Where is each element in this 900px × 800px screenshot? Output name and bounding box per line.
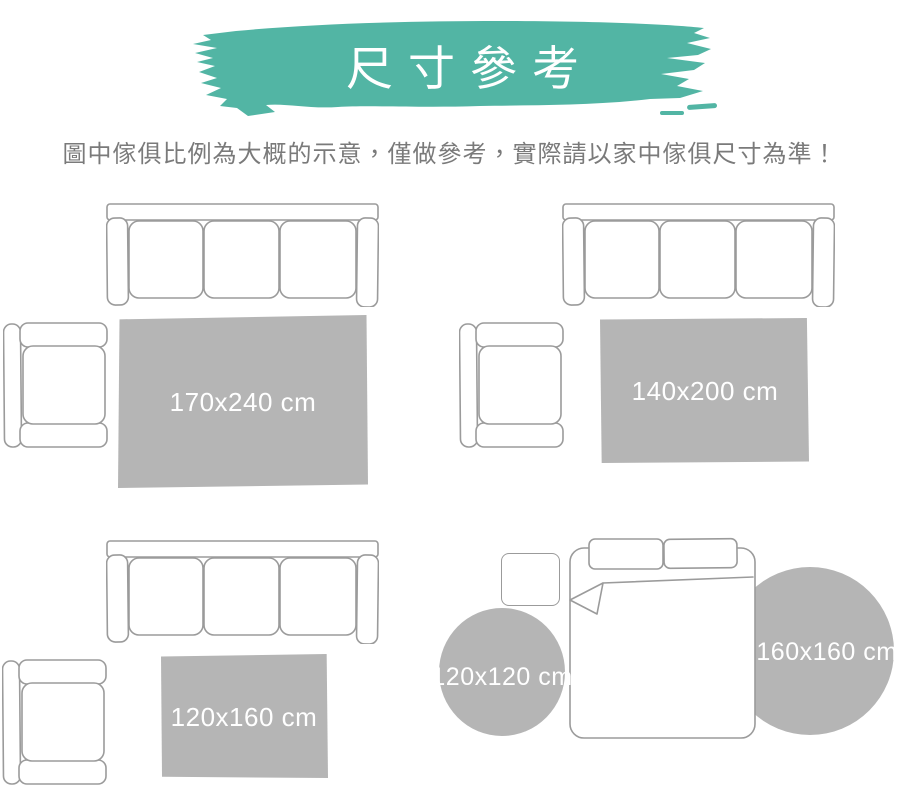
disclaimer-text: 圖中傢俱比例為大概的示意，僅做參考，實際請以家中傢俱尺寸為準！ [0, 134, 900, 169]
sofa-outline [106, 203, 379, 307]
rug-size-label: 170x240 cm [143, 387, 343, 418]
rug-size-label: 160x160 cm [747, 638, 900, 667]
armchair-outline [3, 322, 109, 449]
armchair-outline [459, 322, 565, 449]
sofa-outline [106, 540, 379, 644]
sofa-outline [562, 203, 835, 307]
rug-size-label: 120x160 cm [144, 702, 344, 733]
rug-size-label: 140x200 cm [605, 376, 805, 407]
size-reference-infographic: 尺寸參考 圖中傢俱比例為大概的示意，僅做參考，實際請以家中傢俱尺寸為準！ 170… [0, 0, 900, 800]
page-title: 尺寸參考 [190, 42, 738, 96]
nightstand-outline [501, 553, 560, 606]
bed-outline [566, 536, 758, 742]
armchair-outline [2, 659, 108, 786]
rug-size-label: 120x120 cm [422, 663, 582, 692]
